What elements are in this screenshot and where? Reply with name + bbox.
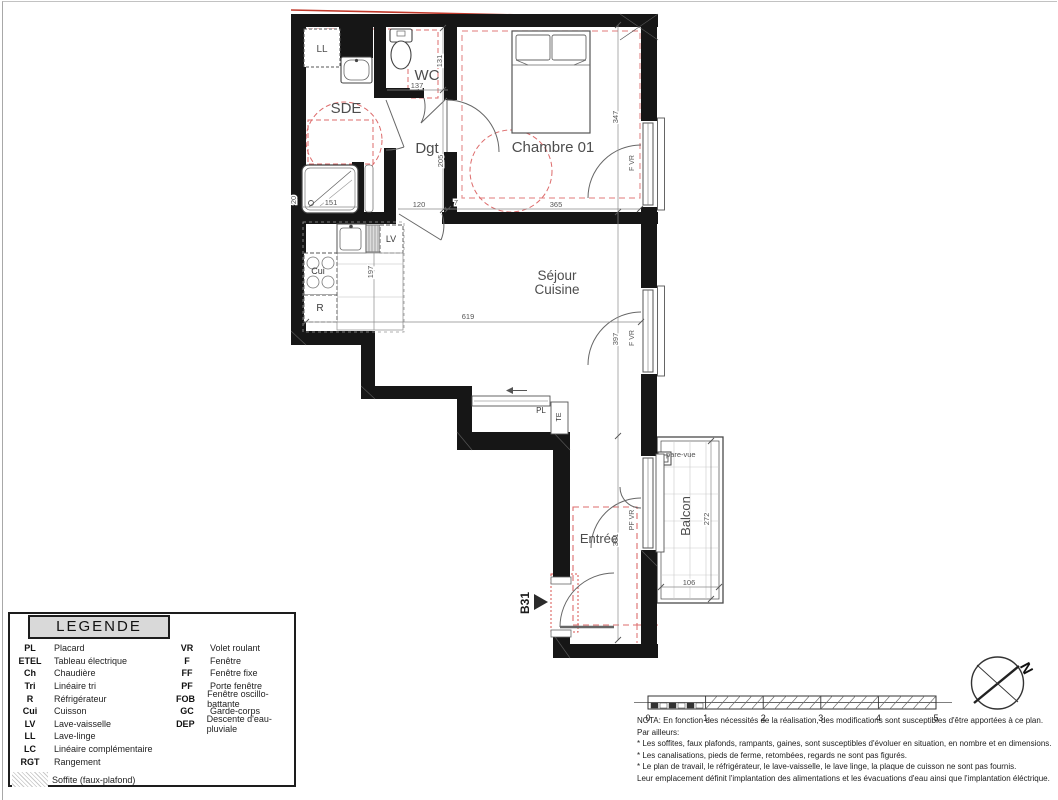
legend-label: Réfrigérateur: [54, 694, 107, 704]
legend-row: PLPlacard: [10, 642, 170, 655]
legend-panel: LEGENDE PLPlacard ETELTableau électrique…: [8, 612, 296, 787]
label-entree: Entrée: [580, 531, 618, 546]
label-window-chambre: F VR: [629, 155, 636, 171]
legend-right-column: VRVolet roulant FFenêtre FFFenêtre fixe …: [168, 642, 294, 730]
legend-abbr: LL: [10, 731, 50, 741]
legend-abbr: RGT: [10, 757, 50, 767]
dim-wc-h: 131: [435, 55, 444, 68]
label-window-entree: PF VR: [629, 510, 636, 531]
legend-label: Rangement: [54, 757, 101, 767]
legend-label: Lave-linge: [54, 731, 96, 741]
legend-label: Soffite (faux-plafond): [52, 775, 135, 785]
dim-shower-w: 151: [325, 198, 338, 207]
label-sde: SDE: [331, 100, 362, 117]
nota-line: Leur emplacement définit l'implantation …: [637, 773, 1055, 785]
nota-line: * Les soffites, faux plafonds, rampants,…: [637, 738, 1055, 750]
label-window-sejour: F VR: [629, 330, 636, 346]
window-chambre: [641, 118, 665, 210]
label-cui: Cui: [311, 266, 325, 276]
nota-line: Par ailleurs:: [637, 727, 1055, 739]
label-wc: WC: [415, 67, 440, 84]
legend-label: Descente d'eau-pluviale: [207, 714, 294, 734]
dim-wall-seg: 20: [289, 196, 298, 204]
legend-abbr: VR: [168, 643, 206, 653]
door-sde: [386, 100, 404, 147]
north-label: N: [1016, 660, 1036, 678]
label-chambre: Chambre 01: [512, 139, 595, 156]
dim-chambre-w: 365: [550, 200, 563, 209]
legend-row-soffite: Soffite (faux-plafond): [10, 772, 170, 788]
dim-kitchen-depth: 197: [366, 266, 375, 279]
legend-row: RRéfrigérateur: [10, 692, 170, 705]
legend-label: Linéaire complémentaire: [54, 744, 153, 754]
legend-row: LVLave-vaisselle: [10, 718, 170, 731]
legend-row: FOBFenêtre oscillo-battante: [168, 692, 294, 705]
door-sejour: [399, 214, 441, 240]
legend-abbr: PF: [168, 681, 206, 691]
label-te: TE: [556, 412, 563, 421]
legend-row: FFenêtre: [168, 655, 294, 668]
label-balcon: Balcon: [678, 496, 693, 536]
legend-label: Volet roulant: [210, 643, 260, 653]
legend-abbr: F: [168, 656, 206, 666]
windows: [641, 118, 665, 552]
legend-label: Placard: [54, 643, 85, 653]
dim-chambre-h: 347: [611, 111, 620, 124]
legend-row: DEPDescente d'eau-pluviale: [168, 718, 294, 731]
legend-row: ETELTableau électrique: [10, 655, 170, 668]
worktop: [337, 253, 403, 330]
dim-balcon-w: 106: [683, 578, 696, 587]
legend-label: Lave-vaisselle: [54, 719, 111, 729]
legend-abbr: R: [10, 694, 50, 704]
label-pl: PL: [536, 406, 546, 415]
legend-row: RGTRangement: [10, 755, 170, 768]
north-needle: [974, 666, 1019, 703]
closet-pl: [472, 387, 550, 406]
dim-dgt-w: 120: [413, 200, 426, 209]
legend-label: Fenêtre fixe: [210, 668, 258, 678]
label-r: R: [316, 303, 323, 314]
label-sejour: Séjour: [537, 268, 577, 283]
legend-abbr: FF: [168, 668, 206, 678]
legend-abbr: ETEL: [10, 656, 50, 666]
legend-abbr: LC: [10, 744, 50, 754]
legend-row: FFFenêtre fixe: [168, 667, 294, 680]
label-dgt: Dgt: [415, 140, 439, 157]
unit-number: B31: [518, 592, 532, 614]
legend-label: Cuisson: [54, 706, 87, 716]
legend-row: LCLinéaire complémentaire: [10, 743, 170, 756]
nota-line: * Le plan de travail, le réfrigérateur, …: [637, 761, 1055, 773]
dim-dgt-small: 7: [454, 198, 458, 207]
bed: [512, 31, 590, 133]
floor-plan-page: 131 137 205 120 7 151 20 347 365 197 619…: [0, 0, 1058, 800]
legend-label: Chaudière: [54, 668, 96, 678]
legend-label: Fenêtre: [210, 656, 241, 666]
legend-abbr: Cui: [10, 706, 50, 716]
legend-row: VRVolet roulant: [168, 642, 294, 655]
legend-abbr: GC: [168, 706, 206, 716]
label-cuisine: Cuisine: [534, 282, 579, 297]
legend-abbr: Ch: [10, 668, 50, 678]
legend-abbr: PL: [10, 643, 50, 653]
nota-line: NOTA: En fonction des nécessités de la r…: [637, 715, 1055, 727]
soffite-swatch: [12, 772, 48, 787]
legend-abbr: FOB: [168, 694, 203, 704]
dim-sejour-w: 619: [462, 312, 475, 321]
legend-label: Tableau électrique: [54, 656, 127, 666]
dim-balcon-h: 272: [702, 513, 711, 526]
legend-abbr: LV: [10, 719, 50, 729]
legend-title: LEGENDE: [28, 615, 170, 639]
legend-abbr: DEP: [168, 719, 203, 729]
compass: N: [972, 657, 1037, 709]
doors: [386, 98, 641, 627]
legend-row: TriLinéaire tri: [10, 680, 170, 693]
window-sejour: [641, 286, 665, 376]
legend-row: LLLave-linge: [10, 730, 170, 743]
label-ll: LL: [316, 44, 328, 55]
legend-row: CuiCuisson: [10, 705, 170, 718]
room-labels: LL WC SDE Dgt Chambre 01 Séjour Cuisine …: [311, 44, 695, 614]
dim-sejour-h: 397: [611, 333, 620, 346]
legend-label: Linéaire tri: [54, 681, 96, 691]
toilet: [390, 29, 412, 69]
label-lv: LV: [386, 234, 396, 244]
shower-screen: [365, 165, 373, 212]
washbasin: [341, 57, 372, 83]
nota-block: NOTA: En fonction des nécessités de la r…: [637, 715, 1055, 785]
label-pare-vue: pare-vue: [666, 450, 696, 459]
window-entree-porte-fenetre: [641, 454, 664, 552]
legend-row: ChChaudière: [10, 667, 170, 680]
unit-label: B31: [518, 592, 548, 614]
legend-left-column: PLPlacard ETELTableau électrique ChChaud…: [10, 642, 170, 788]
unit-arrow: [534, 594, 548, 610]
nota-line: * Les canalisations, pieds de ferme, ret…: [637, 750, 1055, 762]
legend-abbr: Tri: [10, 681, 50, 691]
